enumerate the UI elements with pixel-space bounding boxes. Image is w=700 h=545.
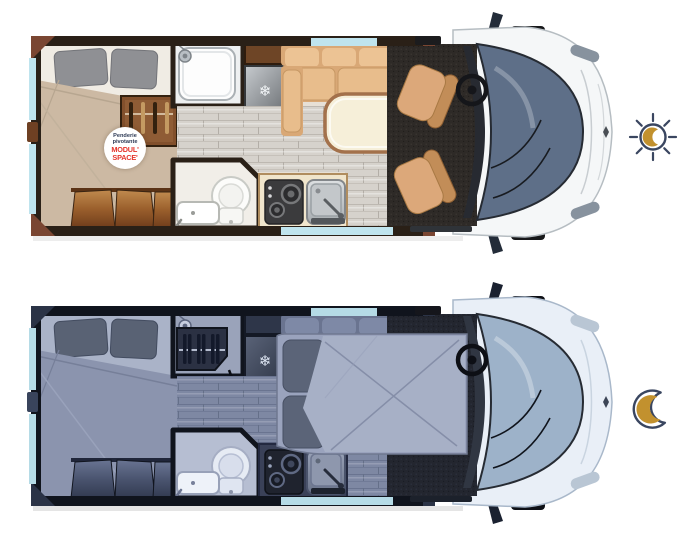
entry-step (410, 496, 472, 502)
roof-vent (415, 306, 441, 315)
dinette-backrest (281, 314, 399, 336)
sun-icon (627, 111, 679, 163)
entry-step (410, 226, 472, 232)
night-floorplan-graphic: ❄ (25, 278, 625, 528)
fridge-column: ❄ (245, 40, 285, 112)
bathroom (173, 430, 259, 498)
night-duvet (303, 336, 465, 452)
pillow (54, 48, 108, 88)
night-main-bed (277, 334, 467, 454)
bathroom (173, 160, 259, 228)
pillow (110, 319, 158, 359)
roof-vent (415, 36, 441, 45)
badge-brand-line: SPACE' (112, 154, 137, 162)
pillow (54, 318, 108, 358)
hand-basin (177, 472, 219, 494)
rear-cabinets (71, 188, 179, 228)
night-floorplan: ❄ (25, 278, 625, 528)
kitchen (259, 174, 347, 228)
moon-icon (629, 385, 677, 433)
shower (173, 40, 243, 106)
hand-basin (177, 202, 219, 224)
pillow (110, 49, 158, 89)
modulspace-badge: Penderie pivotante MODUL' SPACE' (104, 127, 146, 169)
brochure-canvas: ❄ (0, 0, 700, 545)
snowflake-icon: ❄ (259, 353, 272, 370)
rear-cabinets (71, 458, 179, 498)
snowflake-icon: ❄ (259, 83, 272, 100)
day-floorplan: ❄ (25, 8, 625, 258)
